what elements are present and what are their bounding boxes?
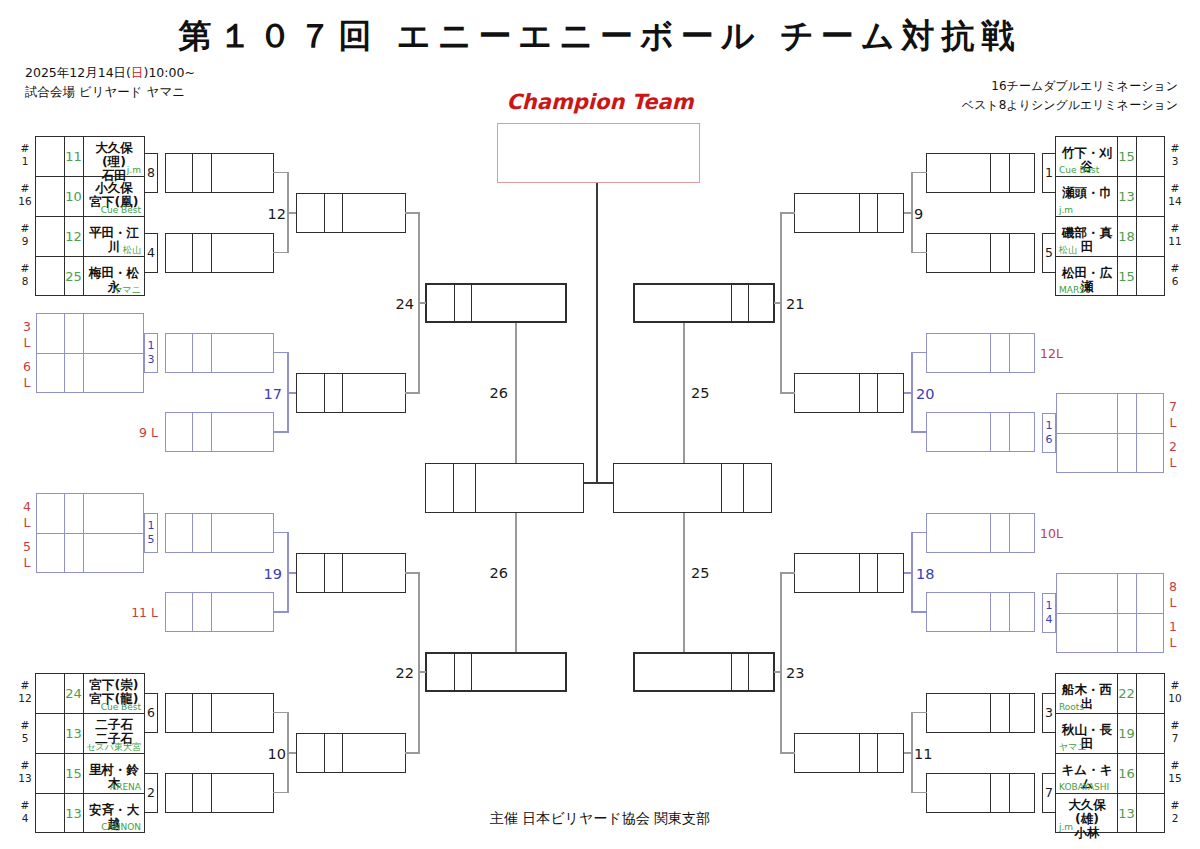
bracket-line [911,172,927,174]
seed-number: 5 [22,732,29,744]
loser-suffix: L [1170,455,1177,470]
divider [342,733,343,773]
format-line-1: 16チームダブルエリミネーション [858,77,1178,96]
seed-number: 16 [18,195,31,207]
team-score: 24 [64,686,83,701]
loser-suffix: L [24,515,31,530]
divider [859,553,860,593]
seed-label: #3 [1164,142,1186,168]
seed-label: #2 [1164,799,1186,825]
loser-number: 5 [23,539,31,554]
team-name: 大久保(雄)小林 [1057,798,1117,840]
bracket-line [780,392,795,394]
loser-number: 3 [23,319,31,334]
team-table-top-left: 大久保(理)石田 j.m 11 小久保宮下(凰) Cue Best 10 平田・… [35,136,145,296]
bracket-line [911,792,927,794]
match-connector-16: 16 [1042,413,1056,453]
team-score: 19 [1117,726,1136,741]
match-digit: 5 [148,533,155,547]
match-connector-13: 13 [144,333,158,373]
match-digit: 1 [148,339,155,353]
match-connector-4: 4 [144,233,158,273]
loser-suffix: L [24,335,31,350]
seed-hash: # [1171,679,1180,691]
bracket-line [515,513,517,652]
loser-number: 1 [1169,619,1177,634]
divider [192,693,193,733]
divider [454,653,455,691]
event-venue: 試合会場 ビリヤード ヤマニ [25,82,195,101]
seed-number: 13 [18,772,31,784]
bracket-line [515,323,517,463]
divider [1009,513,1010,553]
winner-slot [926,233,1035,273]
loser-drop-slot [926,333,1035,373]
winner-slot [926,153,1035,193]
divider [211,333,212,373]
match-number-23: 23 [786,665,816,681]
seed-number: 11 [1168,235,1181,247]
match-number: 4 [147,246,155,260]
divider [36,216,144,217]
loser-seed-label: 5L [18,539,36,571]
divider [990,513,991,553]
team-club: KOBAYASHI [1059,782,1116,792]
divider [192,773,193,813]
divider [36,713,144,714]
final-connector-line [583,482,614,484]
bracket-line [683,513,685,652]
divider [342,373,343,413]
divider [990,412,991,452]
team-score: 15 [1117,269,1136,284]
match-connector-6: 6 [144,693,158,733]
team-score: 16 [1117,766,1136,781]
divider [877,373,878,413]
divider [475,463,476,513]
match-connector-1: 1 [1042,153,1056,193]
loser-drop-table [36,493,144,573]
seed-label: #5 [14,719,36,745]
match-number: 1 [1045,166,1053,180]
date-day: 日 [131,65,144,80]
team-score: 12 [64,229,83,244]
match-number: 2 [147,786,155,800]
match-number-17: 17 [252,386,282,402]
seed-label: #4 [14,799,36,825]
loser-winner-slot [926,592,1035,632]
loser-number: 7 [1169,399,1177,414]
team-club: Cue Best [84,205,141,215]
loser-seed-label: 7L [1164,399,1182,431]
match-number-11: 11 [914,746,944,762]
match-number-19: 19 [252,566,282,582]
loser-suffix: L [1170,415,1177,430]
round2-slot-12 [296,193,406,233]
loser-number: 8 [1169,579,1177,594]
qf-slot-21 [633,283,775,323]
seed-number: 7 [1172,732,1179,744]
date-prefix: 2025年12月14日( [25,65,131,80]
bracket-line [405,392,420,394]
loser-winner-slot [926,412,1035,452]
divider [324,193,325,233]
loser-round2-slot-19 [296,553,406,593]
match-number-26: 26 [480,385,508,401]
divider [990,233,991,273]
team-club: Cue Best [84,702,141,712]
bracket-line [418,671,426,673]
bracket-line [780,572,795,574]
seed-hash: # [1171,799,1180,811]
page-title: 第１０７回 エニーエニーボール チーム対抗戦 [0,14,1200,59]
team-score: 11 [64,149,83,164]
final-slot-left [425,463,584,513]
team-club: ARENA [84,782,141,792]
match-number-10: 10 [256,746,286,762]
final-slot-right [613,463,772,513]
loser-number: 6 [23,359,31,374]
seed-number: 10 [1168,692,1181,704]
seed-number: 2 [1172,812,1179,824]
divider [192,592,193,632]
team-club: Roots [1059,702,1116,712]
divider [36,753,144,754]
bracket-line [683,323,685,463]
event-date: 2025年12月14日(日)10:00~ [25,63,195,82]
seed-label: #13 [14,759,36,785]
winner-slot [165,773,274,813]
seed-hash: # [1171,759,1180,771]
loser-number: 4 [23,499,31,514]
round2-slot-10 [296,733,406,773]
champion-connector-line [596,183,598,483]
divider [192,333,193,373]
loser-drop-table [1056,573,1164,653]
winner-slot [926,773,1035,813]
team-club: MARS [1059,285,1116,295]
divider [1009,233,1010,273]
divider [211,233,212,273]
divider [990,153,991,193]
divider [990,333,991,373]
seed-hash: # [21,759,30,771]
bracket-line [780,752,795,754]
seed-hash: # [21,222,30,234]
match-number-25: 25 [691,385,719,401]
team-club: j.m [1059,205,1116,215]
match-connector-7: 7 [1042,773,1056,813]
team-score: 13 [64,726,83,741]
team-club: CANNON [84,822,141,832]
tournament-bracket-sheet: 第１０７回 エニーエニーボール チーム対抗戦 2025年12月14日(日)10:… [0,0,1200,849]
format-info: 16チームダブルエリミネーション ベスト8よりシングルエリミネーション [858,77,1178,115]
bracket-line [911,712,927,714]
loser-seed-label: 8L [1164,579,1182,611]
loser-seed-label: 12L [1040,346,1080,362]
team-club: 松山 [84,245,141,255]
seed-hash: # [1171,222,1180,234]
loser-drop-table [36,313,144,393]
seed-label: #6 [1164,262,1186,288]
team-score: 22 [1117,686,1136,701]
loser-seed-label: 11 L [108,605,158,621]
divider [192,233,193,273]
divider [1009,333,1010,373]
match-number-25: 25 [691,565,719,581]
team-name-line1: 二子石 [84,718,144,732]
bracket-line [911,431,927,433]
divider [731,653,732,691]
divider [1057,613,1163,614]
team-name-line1: 宮下(崇) [84,678,144,692]
match-digit: 4 [1046,613,1053,627]
match-number-22: 22 [384,665,414,681]
bracket-line [418,302,426,304]
team-club: ヤマニ [84,285,141,295]
bracket-line [903,212,913,214]
team-club: ヤマニ [1059,742,1116,752]
winner-slot [165,233,274,273]
divider [877,553,878,593]
match-connector-15: 15 [144,513,158,553]
round2-slot-11 [794,733,904,773]
format-line-2: ベスト8よりシングルエリミネーション [858,96,1178,115]
seed-hash: # [1171,182,1180,194]
team-name: 瀬頭・巾 [1057,186,1117,200]
match-number-21: 21 [786,296,816,312]
seed-hash: # [21,719,30,731]
divider [1056,713,1164,714]
divider [453,463,454,513]
match-number: 3 [1045,706,1053,720]
bracket-line [911,611,927,613]
divider [990,592,991,632]
team-score: 13 [64,806,83,821]
divider [990,693,991,733]
seed-hash: # [21,679,30,691]
divider [192,412,193,452]
team-club: 松山 [1059,245,1116,255]
loser-round2-slot-17 [296,373,406,413]
match-digit: 1 [1046,599,1053,613]
seed-label: #9 [14,222,36,248]
loser-suffix: L [24,555,31,570]
seed-label: #15 [1164,759,1186,785]
loser-seed-label: 6L [18,359,36,391]
team-score: 25 [64,269,83,284]
divider [454,284,455,322]
match-digit: 1 [1046,419,1053,433]
divider [211,513,212,553]
divider [1056,176,1164,177]
bracket-line [780,212,795,214]
divider [1056,256,1164,257]
match-connector-8: 8 [144,153,158,193]
seed-label: #7 [1164,719,1186,745]
seed-number: 3 [1172,155,1179,167]
bracket-line [903,752,913,754]
bracket-line [418,572,420,754]
divider [1009,693,1010,733]
divider [1056,793,1164,794]
qf-slot-23 [633,652,775,692]
winner-slot [926,693,1035,733]
divider [1056,216,1164,217]
team-club: Cue Best [1059,165,1116,175]
champion-label: Champion Team [400,90,800,114]
match-connector-14: 14 [1042,593,1056,633]
divider [859,193,860,233]
divider [211,592,212,632]
match-number: 5 [1045,246,1053,260]
divider [1009,773,1010,813]
match-number: 7 [1045,786,1053,800]
bracket-line [903,392,913,394]
seed-hash: # [1171,719,1180,731]
seed-hash: # [1171,142,1180,154]
winner-slot [165,153,274,193]
seed-hash: # [21,142,30,154]
team-club: j.m [84,165,141,175]
seed-label: #8 [14,262,36,288]
divider [471,284,472,322]
match-number-18: 18 [916,566,946,582]
divider [748,284,749,322]
match-digit: 1 [148,519,155,533]
divider [859,733,860,773]
match-connector-3: 3 [1042,693,1056,733]
team-score: 18 [1117,229,1136,244]
match-number-26: 26 [480,565,508,581]
divider [990,773,991,813]
qf-slot-22 [425,652,567,692]
team-score: 15 [1117,149,1136,164]
seed-hash: # [21,799,30,811]
divider [211,693,212,733]
seed-number: 12 [18,692,31,704]
divider [211,773,212,813]
loser-seed-label: 3L [18,319,36,351]
loser-seed-label: 10L [1040,526,1080,542]
loser-drop-slot [926,513,1035,553]
seed-hash: # [1171,262,1180,274]
loser-suffix: L [1170,635,1177,650]
divider [748,653,749,691]
loser-winner-slot [165,513,274,553]
winner-slot [165,693,274,733]
match-connector-2: 2 [144,773,158,813]
seed-number: 9 [22,235,29,247]
loser-seed-label: 1L [1164,619,1182,651]
bracket-line [774,302,782,304]
match-connector-5: 5 [1042,233,1056,273]
match-digit: 6 [1046,433,1053,447]
loser-seed-label: 9 L [112,425,158,441]
team-score: 13 [1117,806,1136,821]
loser-round2-slot-20 [794,373,904,413]
seed-number: 4 [22,812,29,824]
divider [1057,433,1163,434]
team-name: 大久保(理)石田 [84,141,144,183]
divider [731,284,732,322]
round2-slot-9 [794,193,904,233]
divider [721,463,722,513]
loser-suffix: L [24,375,31,390]
bracket-line [911,252,927,254]
seed-label: #10 [1164,679,1186,705]
divider [211,412,212,452]
seed-label: #14 [1164,182,1186,208]
team-club: セスパ東大宮 [84,742,141,752]
loser-winner-slot [165,333,274,373]
divider [324,733,325,773]
team-score: 10 [64,189,83,204]
organizer-footer: 主催 日本ビリヤード協会 関東支部 [420,810,780,828]
team-table-top-right: 竹下・刈谷 Cue Best 15 瀬頭・巾 j.m 13 磯部・真田 松山 1… [1055,136,1165,296]
divider [37,353,143,354]
loser-seed-label: 2L [1164,439,1182,471]
divider [192,513,193,553]
team-score: 13 [1117,189,1136,204]
seed-label: #12 [14,679,36,705]
seed-number: 8 [22,275,29,287]
bracket-line [903,572,913,574]
seed-number: 14 [1168,195,1181,207]
loser-seed-label: 4L [18,499,36,531]
match-number-12: 12 [256,206,286,222]
champion-box [497,123,700,183]
bracket-line [774,671,782,673]
divider [877,193,878,233]
divider [37,533,143,534]
divider [1009,153,1010,193]
bracket-line [911,352,927,354]
divider [743,463,744,513]
divider [1056,753,1164,754]
match-number-24: 24 [384,296,414,312]
divider [471,653,472,691]
match-number: 6 [147,706,155,720]
divider [859,373,860,413]
team-score: 15 [64,766,83,781]
divider [342,193,343,233]
match-digit: 3 [148,353,155,367]
seed-number: 15 [1168,772,1181,784]
qf-slot-24 [425,283,567,323]
divider [211,153,212,193]
seed-label: #11 [1164,222,1186,248]
divider [342,553,343,593]
divider [1009,412,1010,452]
divider [36,256,144,257]
seed-hash: # [21,182,30,194]
divider [324,553,325,593]
bracket-line [911,532,927,534]
seed-number: 1 [22,155,29,167]
loser-suffix: L [1170,595,1177,610]
match-number-9: 9 [914,206,944,222]
match-number-20: 20 [916,386,946,402]
divider [36,793,144,794]
loser-drop-slot [165,412,274,452]
seed-hash: # [21,262,30,274]
bracket-line [780,572,782,754]
team-table-bottom-left: 宮下(崇)宮下(龍) Cue Best 24 二子石二子石 セスパ東大宮 13 … [35,673,145,833]
loser-number: 2 [1169,439,1177,454]
divider [1009,592,1010,632]
match-number: 8 [147,166,155,180]
